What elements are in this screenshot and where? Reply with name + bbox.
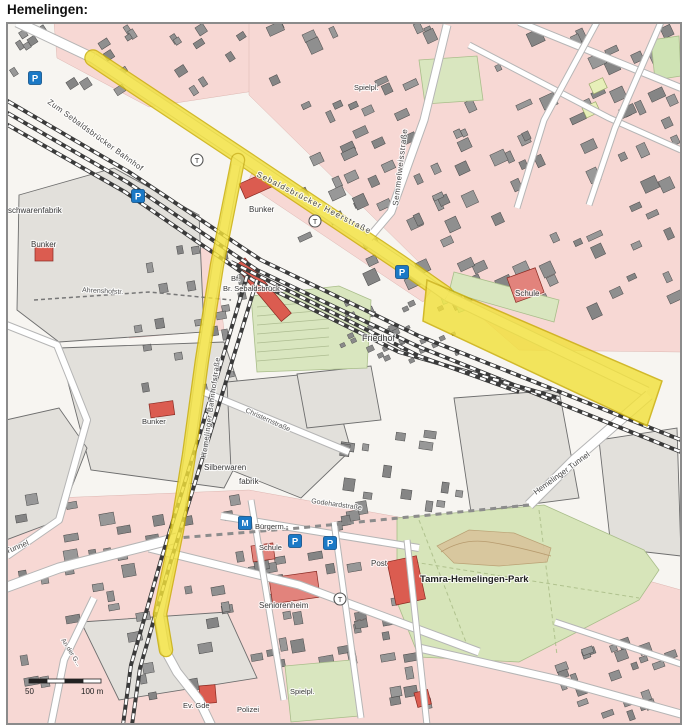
svg-text:P: P [292,536,299,547]
map-frame: PPPPPTTTMZum Sebaldsbrücker BahnhofSebal… [6,22,682,725]
parking-icon: P [29,72,42,85]
label-fabrik: fabrik [239,477,260,486]
label-tamra-park: Tamra-Hemelingen-Park [420,574,529,585]
parking-icon: P [324,537,337,550]
svg-text:M: M [241,518,248,528]
parking-icon: P [289,535,302,548]
label-warenfabrik: schwarenfabrik [8,206,63,215]
city-map[interactable]: PPPPPTTTMZum Sebaldsbrücker BahnhofSebal… [7,23,681,724]
parking-icon: P [132,190,145,203]
label-post: Post [371,559,388,568]
svg-text:T: T [195,156,200,165]
label-seniorenheim: Seniorenheim [259,601,309,610]
label-schule-ost: Schule [515,289,540,298]
label-bf: Bf. [231,274,240,283]
label-friedhof: Friedhof [362,333,396,343]
tram-stop-icon: T [309,215,321,227]
label-ev-gde: Ev. Gde [183,701,210,710]
label-buergerm: Bürgerm.- [255,522,289,531]
scale-label-right: 100 m [81,687,104,696]
tram-stop-icon: T [334,593,346,605]
svg-text:T: T [313,217,318,226]
svg-text:P: P [399,267,406,278]
hemelingen-map-page: Hemelingen: PPPPPTTTMZum Sebaldsbrücker … [0,0,682,725]
label-bunker-1: Bunker [249,205,275,214]
scale-label-left: 50 [25,687,34,696]
label-bunker-3: Bunker [142,417,166,426]
label-schule-sued: Schule [259,543,282,552]
label-spielplatz-sued: Spielpl. [290,687,315,696]
svg-text:T: T [338,595,343,604]
station-marker-icon: M [239,517,252,530]
label-br-sebaldsbrueck: Br. Sebaldsbrück [223,284,280,293]
tram-stop-icon: T [191,154,203,166]
parking-icon: P [396,266,409,279]
label-spielplatz-nord: Spielpl. [354,83,379,92]
label-bunker-2: Bunker [31,240,57,249]
svg-text:P: P [32,73,39,84]
svg-text:P: P [135,191,142,202]
label-silberwaren: Silberwaren [204,463,246,472]
svg-text:P: P [327,538,334,549]
page-title: Hemelingen: [7,2,88,17]
label-polizei: Polizei [237,705,259,714]
